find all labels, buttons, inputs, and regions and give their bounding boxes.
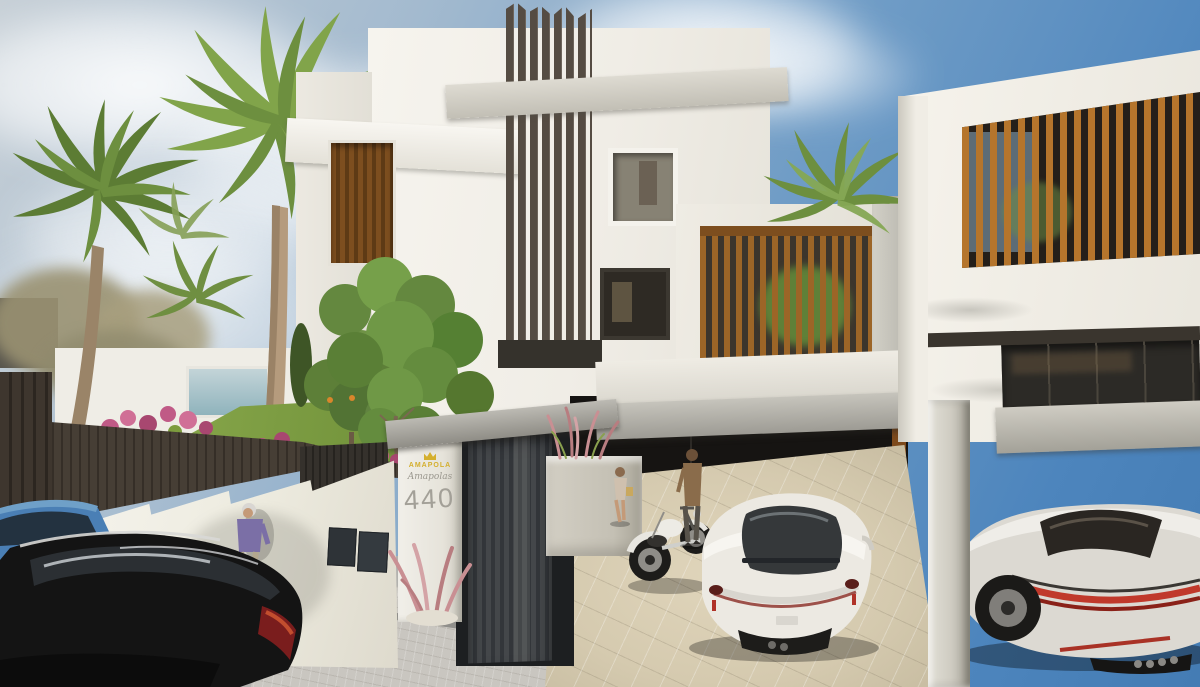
woman-with-bag bbox=[610, 467, 633, 527]
right-building-corner bbox=[898, 96, 928, 442]
ornamental-grass bbox=[548, 408, 618, 458]
right-driveway-pillar bbox=[928, 400, 970, 687]
white-muscle-car bbox=[958, 504, 1200, 674]
white-sports-car bbox=[689, 493, 879, 662]
architectural-rendering: AMAPOLA Amapolas 440 bbox=[0, 0, 1200, 687]
foreground-art bbox=[0, 0, 1200, 687]
ornamental-grass bbox=[390, 545, 470, 626]
